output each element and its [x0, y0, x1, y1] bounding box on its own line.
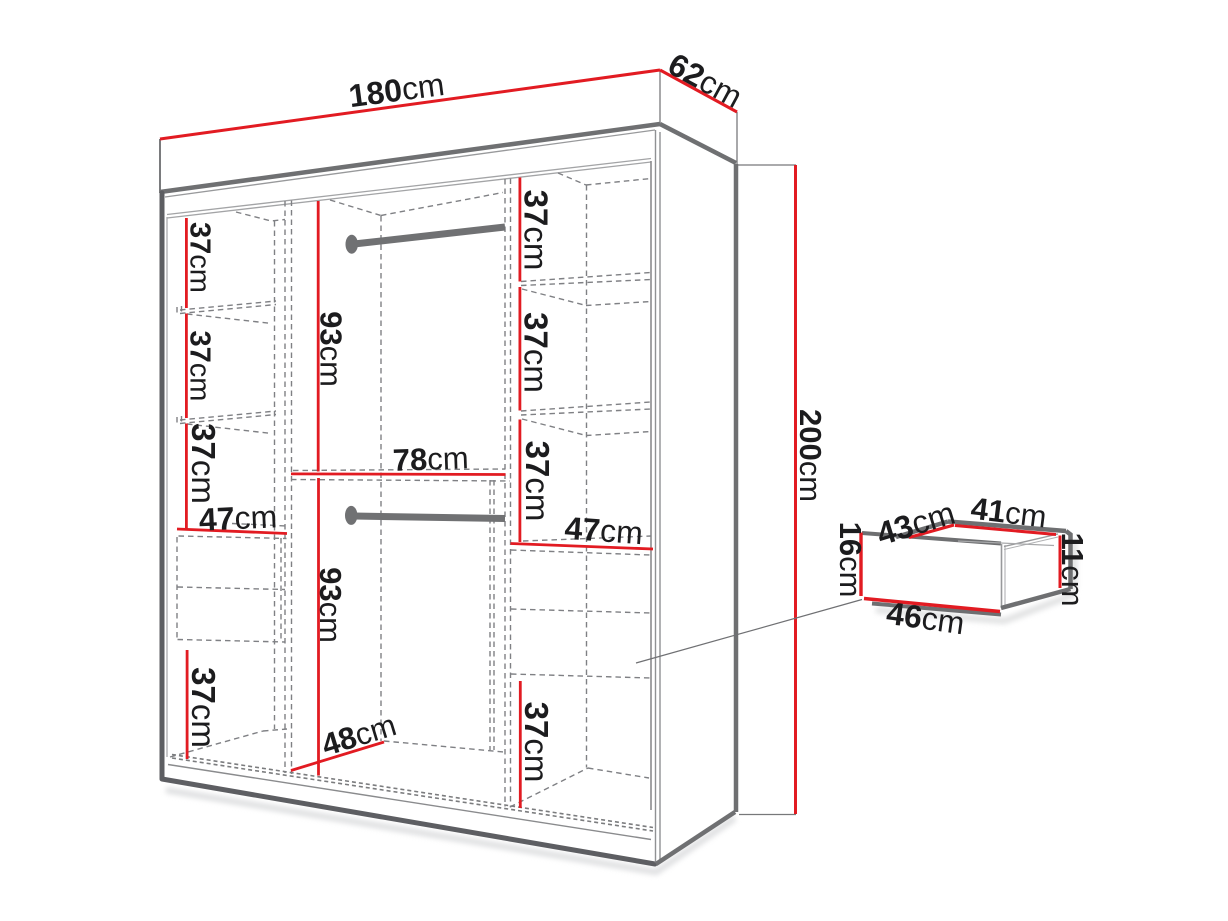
- svg-text:37cm: 37cm: [518, 312, 555, 393]
- svg-text:11cm: 11cm: [1055, 532, 1090, 606]
- svg-text:37cm: 37cm: [519, 441, 556, 522]
- svg-text:37cm: 37cm: [518, 190, 555, 271]
- svg-text:93cm: 93cm: [314, 311, 349, 387]
- svg-text:78cm: 78cm: [392, 440, 469, 478]
- svg-text:47cm: 47cm: [563, 510, 644, 551]
- svg-text:37cm: 37cm: [185, 423, 222, 504]
- svg-text:37cm: 37cm: [518, 702, 555, 783]
- svg-text:200cm: 200cm: [793, 409, 828, 502]
- svg-text:37cm: 37cm: [185, 667, 222, 748]
- svg-text:37cm: 37cm: [184, 331, 216, 402]
- svg-text:37cm: 37cm: [184, 222, 216, 293]
- svg-text:16cm: 16cm: [833, 522, 868, 598]
- svg-text:47cm: 47cm: [198, 498, 278, 537]
- svg-text:93cm: 93cm: [313, 567, 348, 643]
